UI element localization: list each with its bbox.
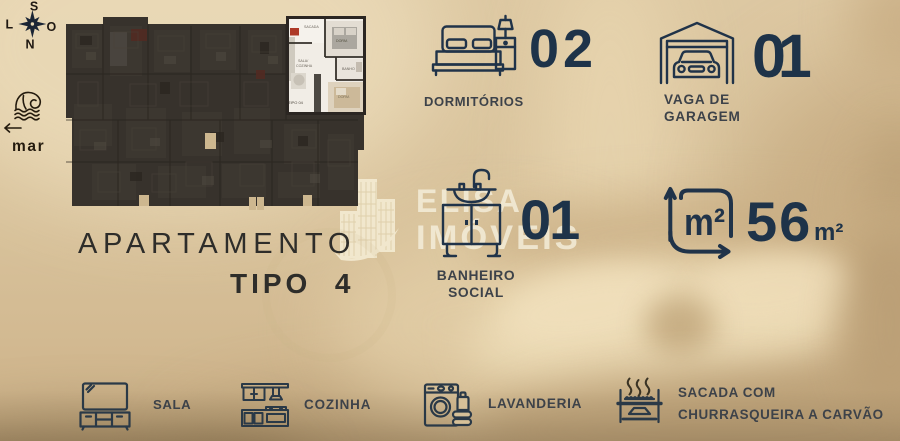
svg-text:L: L [6,18,14,32]
svg-text:TIPO 04: TIPO 04 [288,100,304,105]
svg-text:COZINHA: COZINHA [296,64,313,68]
svg-text:DORM.: DORM. [338,95,350,99]
svg-text:O: O [47,20,57,34]
svg-text:SALA/: SALA/ [298,59,308,63]
svg-text:N: N [25,38,34,52]
svg-text:S: S [30,0,38,14]
svg-text:BANHO: BANHO [342,67,355,71]
svg-text:DORM.: DORM. [336,39,348,43]
svg-text:m²: m² [684,202,725,244]
svg-text:SACADA: SACADA [304,25,319,29]
